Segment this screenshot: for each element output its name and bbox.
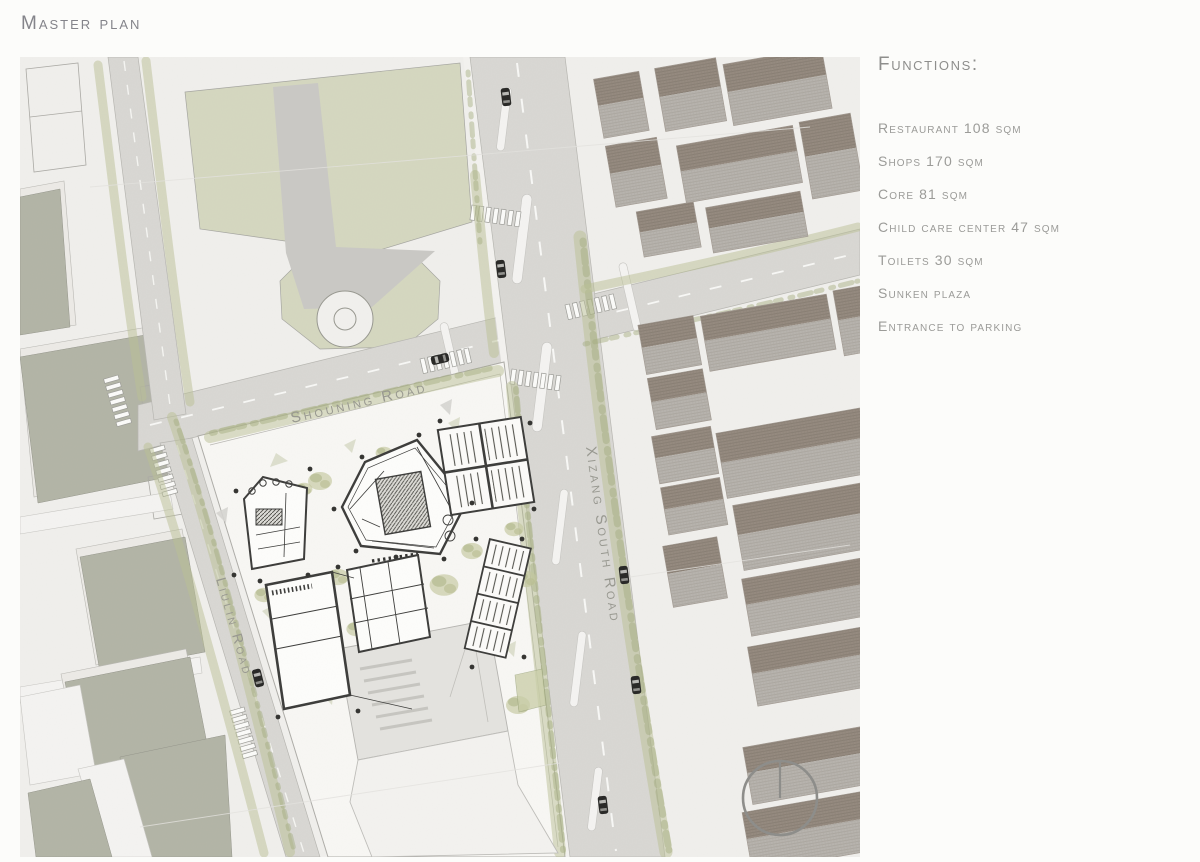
function-item-shops: Shops 170 sqm bbox=[878, 153, 1188, 169]
function-item-restaurant: Restaurant 108 sqm bbox=[878, 120, 1188, 136]
function-item-sunken-plaza: Sunken plaza bbox=[878, 285, 1188, 301]
master-plan-drawing: Shouning Road Xizang South Road Liulin R… bbox=[20, 57, 860, 857]
paper-texture bbox=[20, 57, 860, 857]
functions-heading: Functions: bbox=[878, 54, 1188, 76]
functions-panel: Functions: Restaurant 108 sqm Shops 170 … bbox=[878, 54, 1188, 351]
function-item-toilets: Toilets 30 sqm bbox=[878, 252, 1188, 268]
page-title: Master plan bbox=[21, 13, 141, 35]
function-item-parking-entrance: Entrance to parking bbox=[878, 318, 1188, 334]
plan-canvas: Shouning Road Xizang South Road Liulin R… bbox=[20, 57, 860, 857]
function-item-childcare: Child care center 47 sqm bbox=[878, 219, 1188, 235]
function-item-core: Core 81 sqm bbox=[878, 186, 1188, 202]
